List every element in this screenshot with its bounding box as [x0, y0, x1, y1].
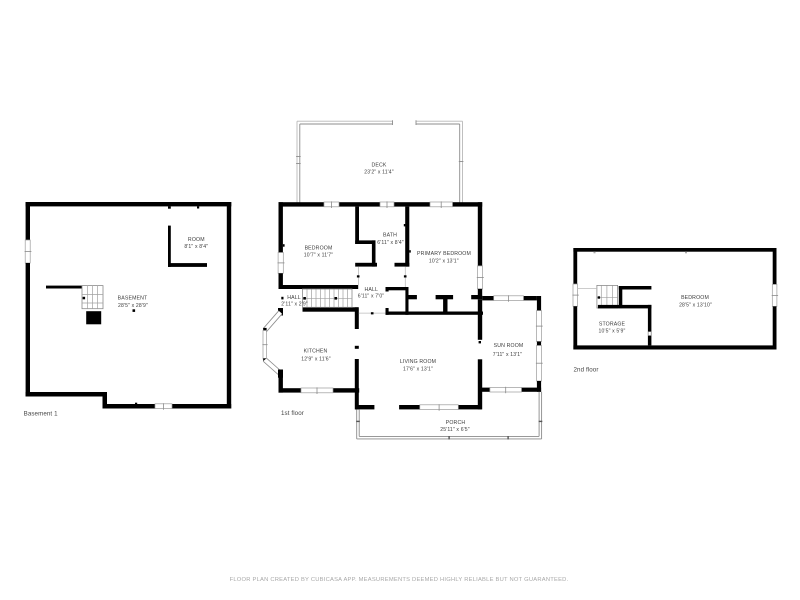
- svg-text:FLOOR PLAN CREATED BY CUBICASA: FLOOR PLAN CREATED BY CUBICASA APP. MEAS…: [230, 577, 569, 583]
- svg-text:ROOM: ROOM: [188, 237, 205, 243]
- svg-text:28'5" x 13'10": 28'5" x 13'10": [679, 302, 712, 308]
- svg-text:17'6" x 13'1": 17'6" x 13'1": [403, 367, 433, 373]
- svg-text:SUN ROOM: SUN ROOM: [494, 343, 524, 349]
- svg-text:25'11" x 6'5": 25'11" x 6'5": [440, 427, 470, 433]
- svg-text:PRIMARY BEDROOM: PRIMARY BEDROOM: [417, 251, 471, 257]
- svg-text:LIVING ROOM: LIVING ROOM: [400, 359, 436, 365]
- svg-text:6'11" x 8'4": 6'11" x 8'4": [377, 240, 404, 246]
- svg-text:8'1" x 8'4": 8'1" x 8'4": [184, 244, 208, 250]
- svg-text:2nd floor: 2nd floor: [574, 367, 599, 374]
- svg-text:BEDROOM: BEDROOM: [681, 295, 709, 301]
- svg-text:STORAGE: STORAGE: [599, 321, 626, 327]
- svg-text:6'11" x 7'0": 6'11" x 7'0": [358, 294, 385, 300]
- svg-text:1st floor: 1st floor: [281, 410, 304, 417]
- svg-text:23'2" x 11'4": 23'2" x 11'4": [364, 170, 394, 176]
- svg-text:HALL: HALL: [365, 287, 379, 293]
- svg-text:PORCH: PORCH: [446, 420, 466, 426]
- svg-text:10'5" x 5'9": 10'5" x 5'9": [599, 329, 626, 335]
- svg-text:BEDROOM: BEDROOM: [305, 245, 333, 251]
- svg-text:KITCHEN: KITCHEN: [304, 349, 328, 355]
- svg-text:BASEMENT: BASEMENT: [118, 296, 148, 302]
- svg-text:10'2" x 13'1": 10'2" x 13'1": [429, 258, 459, 264]
- svg-text:28'5" x 28'9": 28'5" x 28'9": [118, 303, 148, 309]
- svg-text:10'7" x 11'7": 10'7" x 11'7": [304, 253, 334, 259]
- svg-text:HALL: HALL: [287, 295, 301, 301]
- svg-text:7'11" x 13'1": 7'11" x 13'1": [493, 352, 523, 358]
- svg-text:12'9" x 11'6": 12'9" x 11'6": [301, 356, 331, 362]
- svg-text:Basement 1: Basement 1: [24, 410, 58, 417]
- svg-text:DECK: DECK: [371, 162, 386, 168]
- svg-text:2'11" x 2'9": 2'11" x 2'9": [281, 302, 308, 308]
- svg-text:BATH: BATH: [383, 232, 397, 238]
